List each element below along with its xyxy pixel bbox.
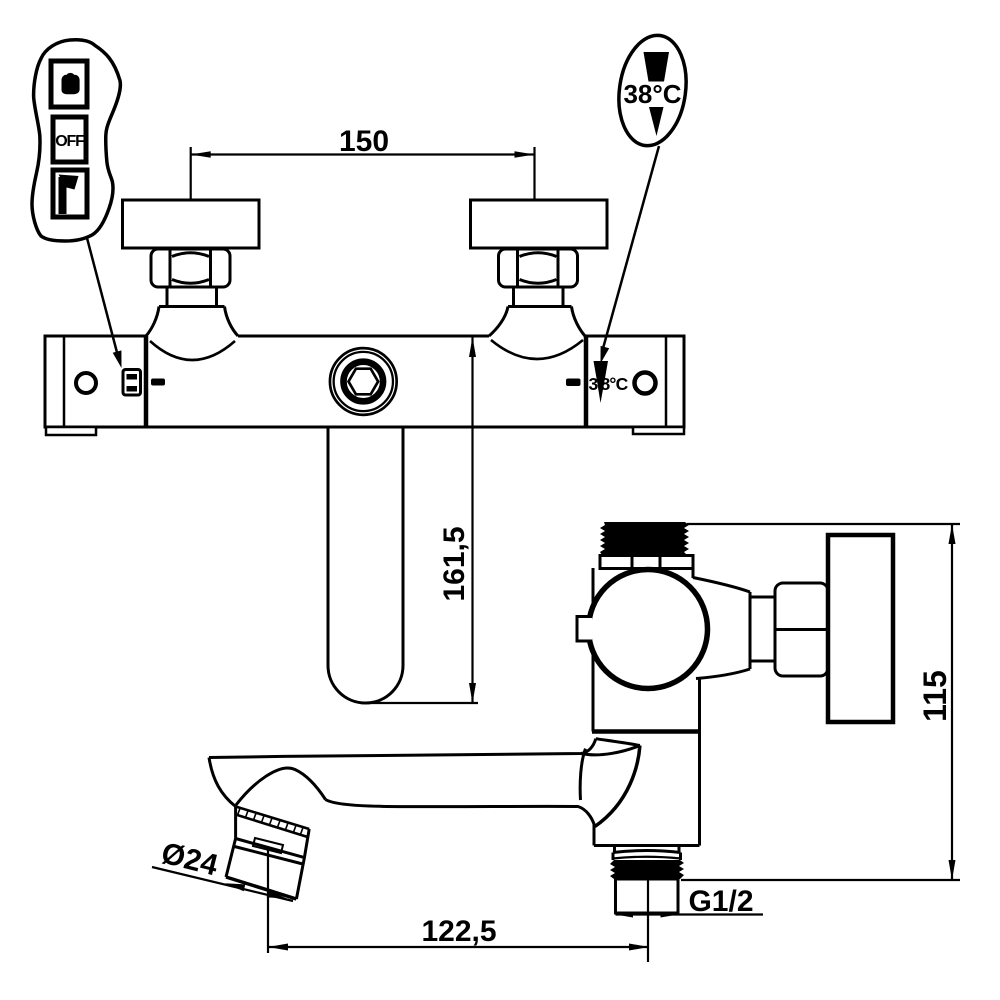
svg-text:3: 3: [589, 374, 599, 394]
svg-text:122,5: 122,5: [421, 915, 496, 948]
svg-text:115: 115: [917, 670, 953, 722]
svg-text:150: 150: [339, 125, 389, 158]
svg-text:OFF: OFF: [55, 133, 85, 150]
svg-text:8°C: 8°C: [601, 374, 629, 394]
svg-text:161,5: 161,5: [438, 526, 471, 601]
svg-text:38°C: 38°C: [623, 79, 681, 109]
svg-text:G1/2: G1/2: [688, 885, 753, 918]
